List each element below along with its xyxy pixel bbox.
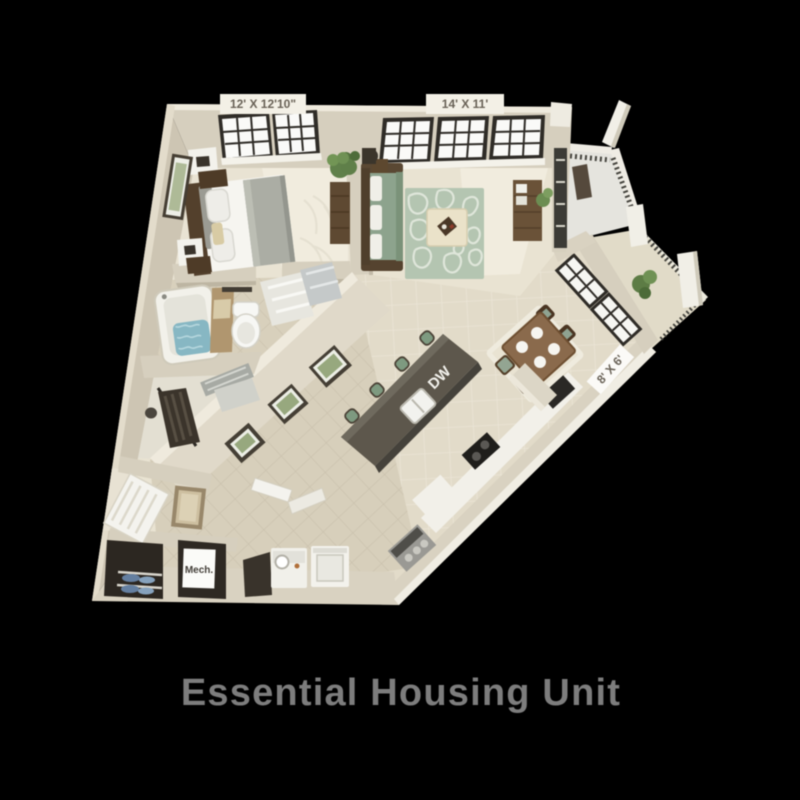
- svg-text:12' X 12'10": 12' X 12'10": [230, 97, 296, 111]
- svg-text:14' X 11': 14' X 11': [442, 97, 489, 111]
- svg-text:Essential Housing Unit: Essential Housing Unit: [181, 672, 621, 714]
- svg-text:Mech.: Mech.: [185, 565, 214, 576]
